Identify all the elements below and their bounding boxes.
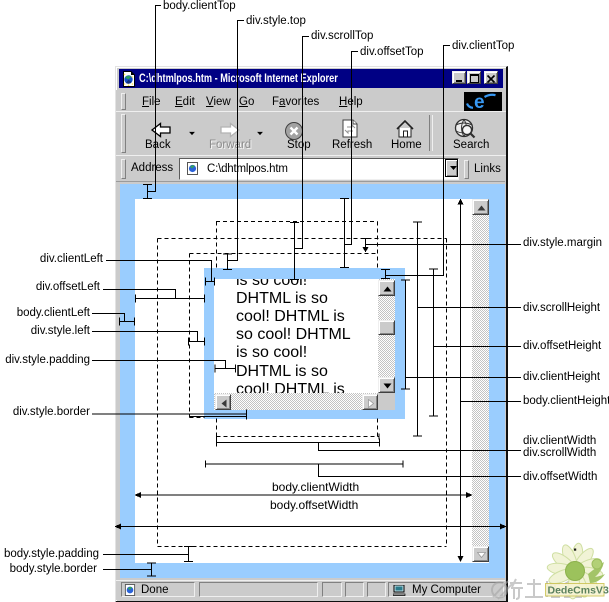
svg-text:DedeCmsV3: DedeCmsV3 — [548, 585, 609, 597]
